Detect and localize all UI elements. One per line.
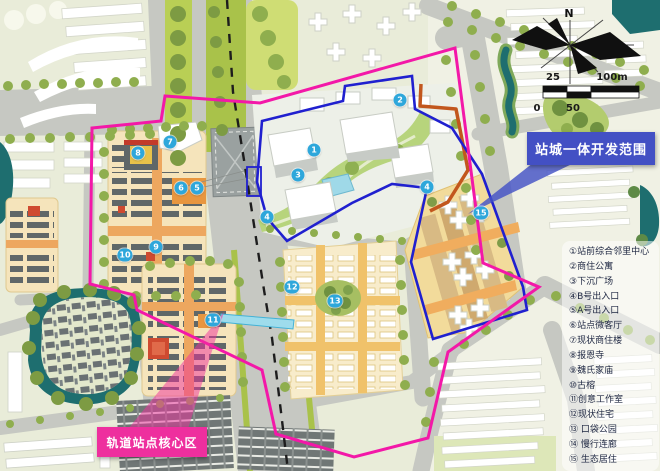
legend-item-5: ⑤A号出入口 bbox=[569, 307, 655, 316]
map-marker-5: 5 bbox=[191, 182, 204, 195]
block-residential-mid bbox=[283, 241, 403, 399]
scale-50: 50 bbox=[566, 103, 580, 114]
map-marker-7: 7 bbox=[164, 136, 177, 149]
legend-item-7: ⑦现状商住楼 bbox=[569, 337, 655, 346]
legend-item-9: ⑨魏氏家庙 bbox=[569, 367, 655, 376]
map-marker-4a: 4 bbox=[261, 211, 274, 224]
legend-item-3: ③下沉广场 bbox=[569, 278, 655, 287]
map-marker-9: 9 bbox=[150, 241, 163, 254]
legend-item-11: ⑪创意工作室 bbox=[569, 396, 655, 405]
map-legend: ①站前综合邻里中心 ②商住公寓 ③下沉广场 ④B号出入口 ⑤A号出入口 ⑥站点微… bbox=[562, 241, 659, 471]
block-left-yellow bbox=[6, 198, 58, 292]
map-marker-15: 15 bbox=[473, 207, 488, 220]
masterplan-map: N 25 100m 0 50 1 2 3 4 4 5 6 7 8 9 10 11… bbox=[0, 0, 660, 471]
map-marker-4b: 4 bbox=[421, 181, 434, 194]
map-canvas: N 25 100m 0 50 bbox=[0, 0, 660, 471]
legend-item-15: ⑮ 生态居住 bbox=[569, 456, 655, 465]
map-marker-13: 13 bbox=[327, 295, 342, 308]
map-marker-8: 8 bbox=[132, 147, 145, 160]
legend-item-12: ⑫现状住宅 bbox=[569, 411, 655, 420]
map-marker-3: 3 bbox=[292, 169, 305, 182]
village-moat bbox=[28, 288, 141, 404]
map-marker-1: 1 bbox=[308, 144, 321, 157]
legend-item-1: ①站前综合邻里中心 bbox=[569, 248, 655, 257]
legend-item-13: ⑬ 口袋公园 bbox=[569, 426, 655, 435]
scale-25: 25 bbox=[546, 72, 560, 83]
map-marker-11: 11 bbox=[205, 314, 220, 327]
scale-100m: 100m bbox=[596, 72, 627, 83]
map-marker-12: 12 bbox=[284, 281, 299, 294]
metro-station-box bbox=[211, 127, 259, 197]
compass-north-label: N bbox=[564, 7, 573, 20]
legend-item-10: ⑩古榕 bbox=[569, 382, 655, 391]
legend-item-8: ⑧报恩寺 bbox=[569, 352, 655, 361]
map-marker-10: 10 bbox=[117, 249, 132, 262]
blue-area-label: 站城一体开发范围 bbox=[527, 132, 655, 165]
legend-item-6: ⑥站点微客厅 bbox=[569, 322, 655, 331]
legend-item-14: ⑭ 慢行连廊 bbox=[569, 441, 655, 450]
map-marker-2: 2 bbox=[394, 94, 407, 107]
scale-0: 0 bbox=[534, 103, 541, 114]
legend-item-4: ④B号出入口 bbox=[569, 293, 655, 302]
magenta-area-label: 轨道站点核心区 bbox=[97, 427, 207, 457]
legend-item-2: ②商住公寓 bbox=[569, 263, 655, 272]
map-marker-6: 6 bbox=[175, 182, 188, 195]
